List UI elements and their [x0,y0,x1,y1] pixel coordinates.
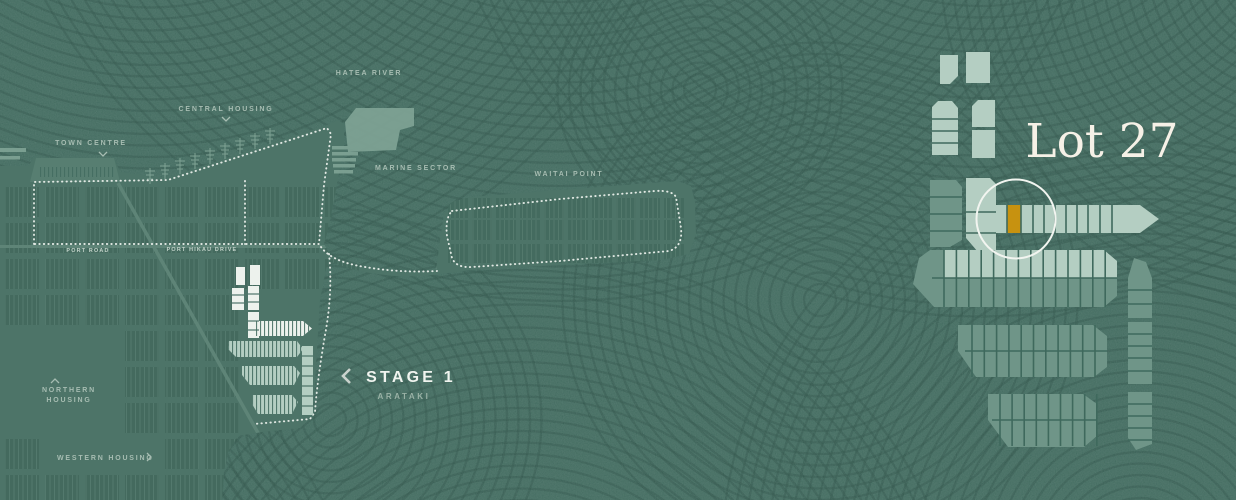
town-centre-buildings [40,167,114,177]
detail-lot[interactable] [1128,392,1152,450]
label-marine-sector: MARINE SECTOR [375,165,457,172]
detail-lot[interactable] [1128,322,1152,384]
detail-lot[interactable] [966,52,990,83]
label-western-housing[interactable]: WESTERN HOUSING [57,455,154,462]
stage-title[interactable]: STAGE 1 [366,369,456,386]
selected-lot[interactable] [1007,205,1021,233]
masterplan-canvas: HATEA RIVER CENTRAL HOUSING TOWN CENTRE … [0,0,1236,500]
label-port-hikau-drive: PORT HIKAU DRIVE [167,247,238,253]
detail-lot[interactable] [932,101,958,155]
detail-lot[interactable] [972,130,995,158]
stage-subtitle: ARATAKI [377,392,430,401]
label-hatea-river: HATEA RIVER [336,70,402,77]
label-northern-housing-2: HOUSING [46,397,91,404]
masterplan-map: HATEA RIVER CENTRAL HOUSING TOWN CENTRE … [0,0,1236,500]
label-northern-housing-1[interactable]: NORTHERN [42,387,96,394]
label-waitai-point: WAITAI POINT [535,171,604,178]
selected-lot-label: Lot 27 [1025,114,1178,169]
label-central-housing[interactable]: CENTRAL HOUSING [179,106,274,113]
detail-lot[interactable] [972,100,995,127]
label-port-road: PORT ROAD [66,248,109,254]
label-town-centre[interactable]: TOWN CENTRE [55,140,127,147]
